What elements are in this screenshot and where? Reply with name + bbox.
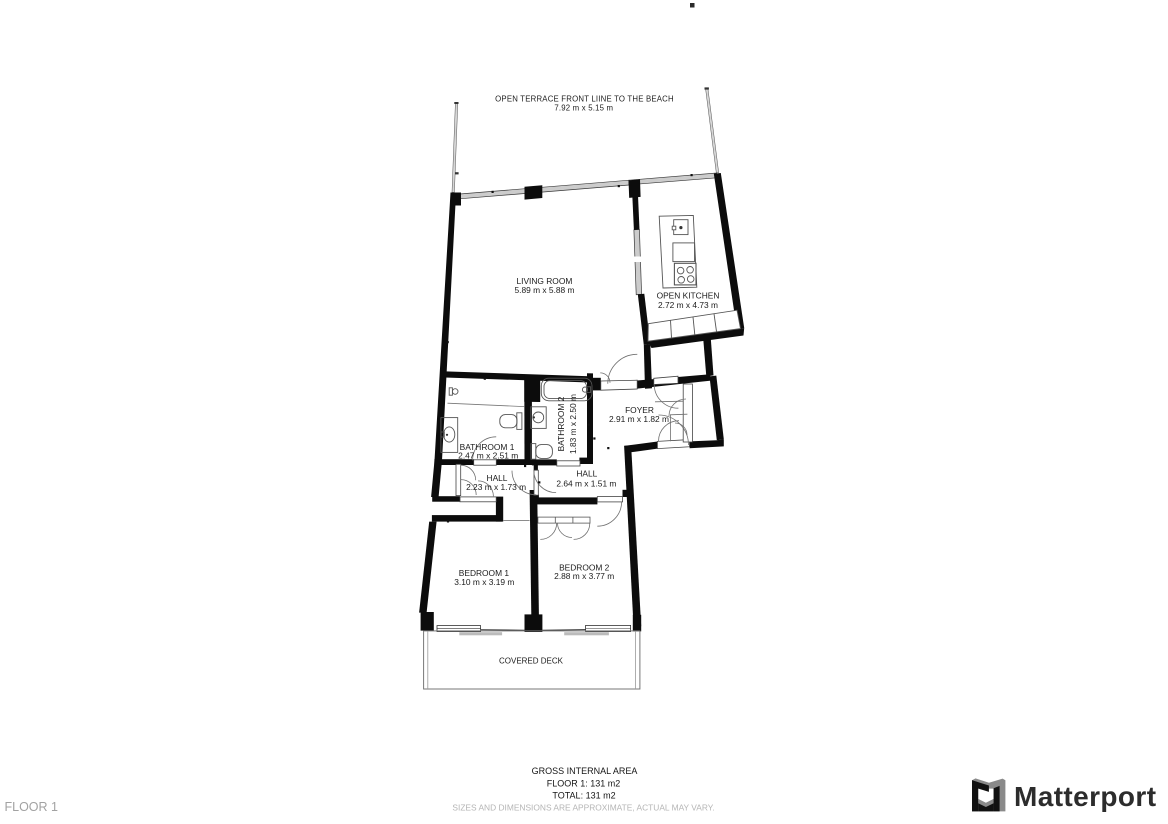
svg-text:FLOOR 1: FLOOR 1: [5, 800, 59, 814]
svg-text:HALL: HALL: [576, 468, 597, 478]
svg-text:COVERED DECK: COVERED DECK: [499, 656, 564, 665]
svg-text:OPEN TERRACE FRONT LIINE TO TH: OPEN TERRACE FRONT LIINE TO THE BEACH: [495, 95, 674, 104]
svg-text:SIZES AND DIMENSIONS ARE APPRO: SIZES AND DIMENSIONS ARE APPROXIMATE, AC…: [452, 803, 714, 813]
svg-text:1.83 m x 2.50 m: 1.83 m x 2.50 m: [568, 394, 578, 454]
svg-text:2.64 m x 1.51 m: 2.64 m x 1.51 m: [556, 478, 616, 488]
svg-text:2.23 m x 1.73 m: 2.23 m x 1.73 m: [466, 482, 526, 492]
svg-text:GROSS INTERNAL AREA: GROSS INTERNAL AREA: [532, 766, 638, 776]
svg-text:2.91 m x 1.82 m: 2.91 m x 1.82 m: [609, 414, 669, 424]
svg-text:Matterport: Matterport: [1014, 781, 1156, 812]
svg-text:3.10 m x 3.19 m: 3.10 m x 3.19 m: [454, 577, 514, 587]
svg-text:5.89 m x 5.88 m: 5.89 m x 5.88 m: [514, 285, 574, 295]
svg-text:7.92 m x 5.15 m: 7.92 m x 5.15 m: [554, 103, 613, 112]
svg-text:FLOOR 1: 131 m2: FLOOR 1: 131 m2: [547, 779, 621, 789]
svg-text:2.88 m x 3.77 m: 2.88 m x 3.77 m: [554, 571, 614, 581]
svg-text:2.72 m x 4.73 m: 2.72 m x 4.73 m: [658, 300, 718, 310]
svg-text:TOTAL: 131 m2: TOTAL: 131 m2: [552, 790, 615, 800]
svg-text:2.47 m x 2.51 m: 2.47 m x 2.51 m: [458, 451, 518, 461]
svg-text:BATHROOM 2: BATHROOM 2: [556, 396, 566, 451]
